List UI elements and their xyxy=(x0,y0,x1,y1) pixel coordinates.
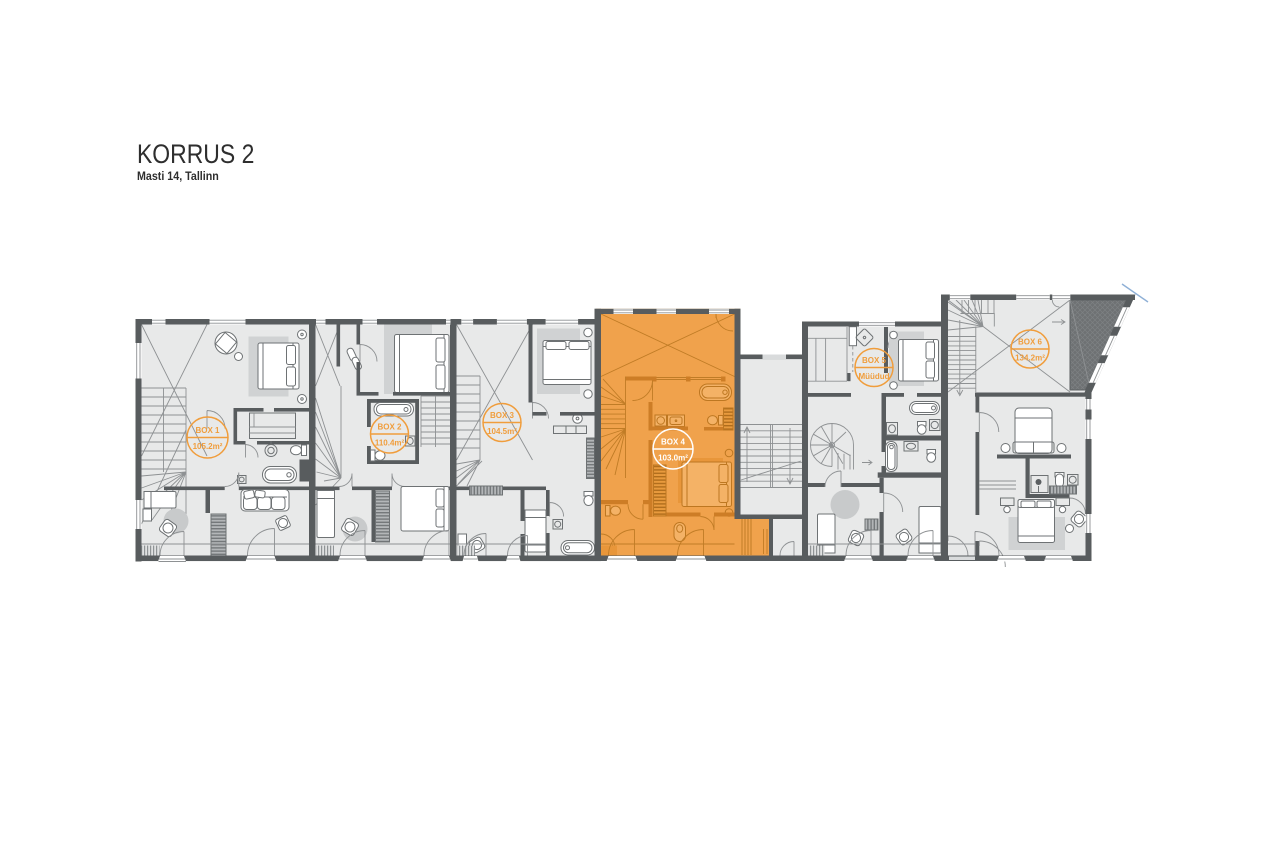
svg-text:103.0m²: 103.0m² xyxy=(658,454,688,463)
svg-text:105.2m²: 105.2m² xyxy=(193,442,223,451)
svg-text:BOX 5: BOX 5 xyxy=(862,356,887,365)
svg-text:BOX 6: BOX 6 xyxy=(1018,338,1043,347)
svg-text:110.4m²: 110.4m² xyxy=(375,439,405,448)
svg-text:BOX 4: BOX 4 xyxy=(661,438,686,447)
svg-text:BOX 2: BOX 2 xyxy=(377,423,402,432)
svg-text:134.2m²: 134.2m² xyxy=(1015,354,1045,363)
svg-text:Müüdud: Müüdud xyxy=(858,372,889,381)
svg-text:104.5m²: 104.5m² xyxy=(487,427,517,436)
svg-text:BOX 3: BOX 3 xyxy=(490,411,515,420)
svg-text:BOX 1: BOX 1 xyxy=(195,426,220,435)
